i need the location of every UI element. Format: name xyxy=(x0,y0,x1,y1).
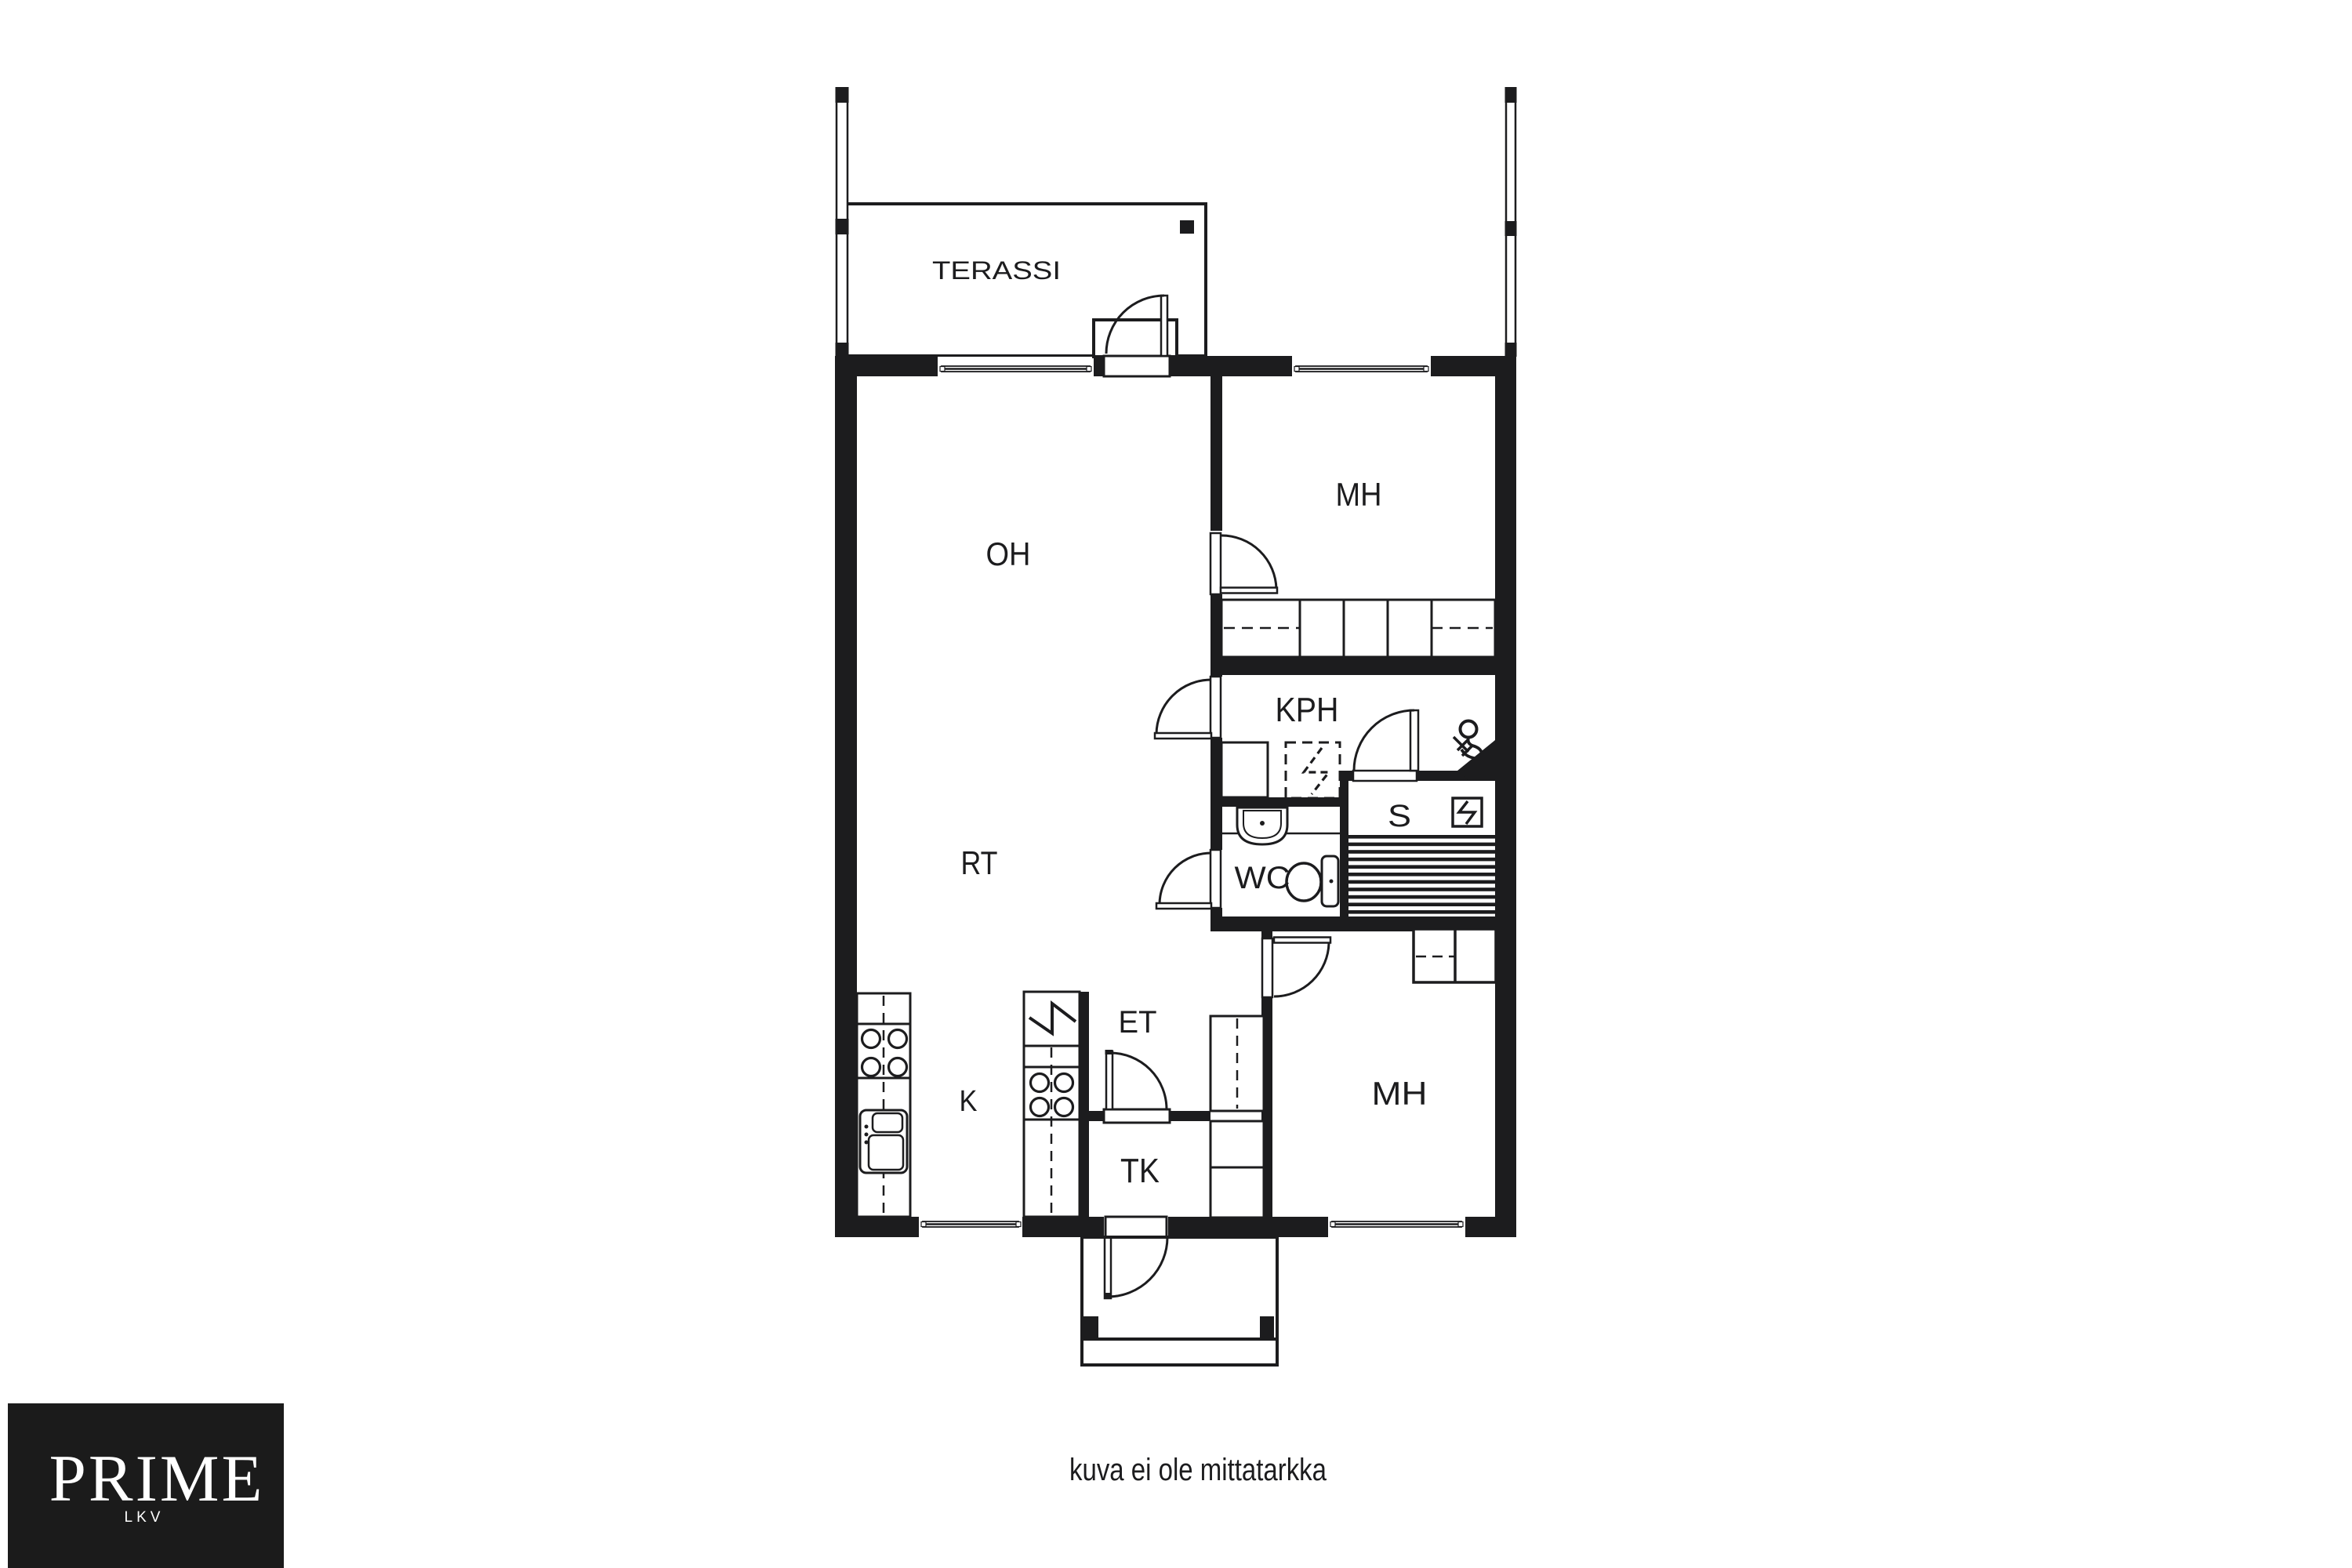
svg-text:LKV: LKV xyxy=(125,1509,165,1526)
svg-text:ET: ET xyxy=(1119,1005,1157,1040)
svg-text:kuva ei ole mittatarkka: kuva ei ole mittatarkka xyxy=(1069,1453,1327,1487)
svg-text:MH: MH xyxy=(1372,1075,1428,1112)
svg-text:TERASSI: TERASSI xyxy=(932,256,1061,285)
svg-text:KPH: KPH xyxy=(1276,691,1339,729)
svg-text:TK: TK xyxy=(1120,1152,1160,1190)
svg-text:OH: OH xyxy=(986,535,1031,572)
svg-text:RT: RT xyxy=(961,844,998,881)
svg-text:MH: MH xyxy=(1336,476,1382,513)
svg-text:WC: WC xyxy=(1235,861,1290,895)
svg-text:K: K xyxy=(960,1085,978,1118)
svg-text:PRIME: PRIME xyxy=(49,1442,265,1515)
svg-text:S: S xyxy=(1388,799,1411,833)
